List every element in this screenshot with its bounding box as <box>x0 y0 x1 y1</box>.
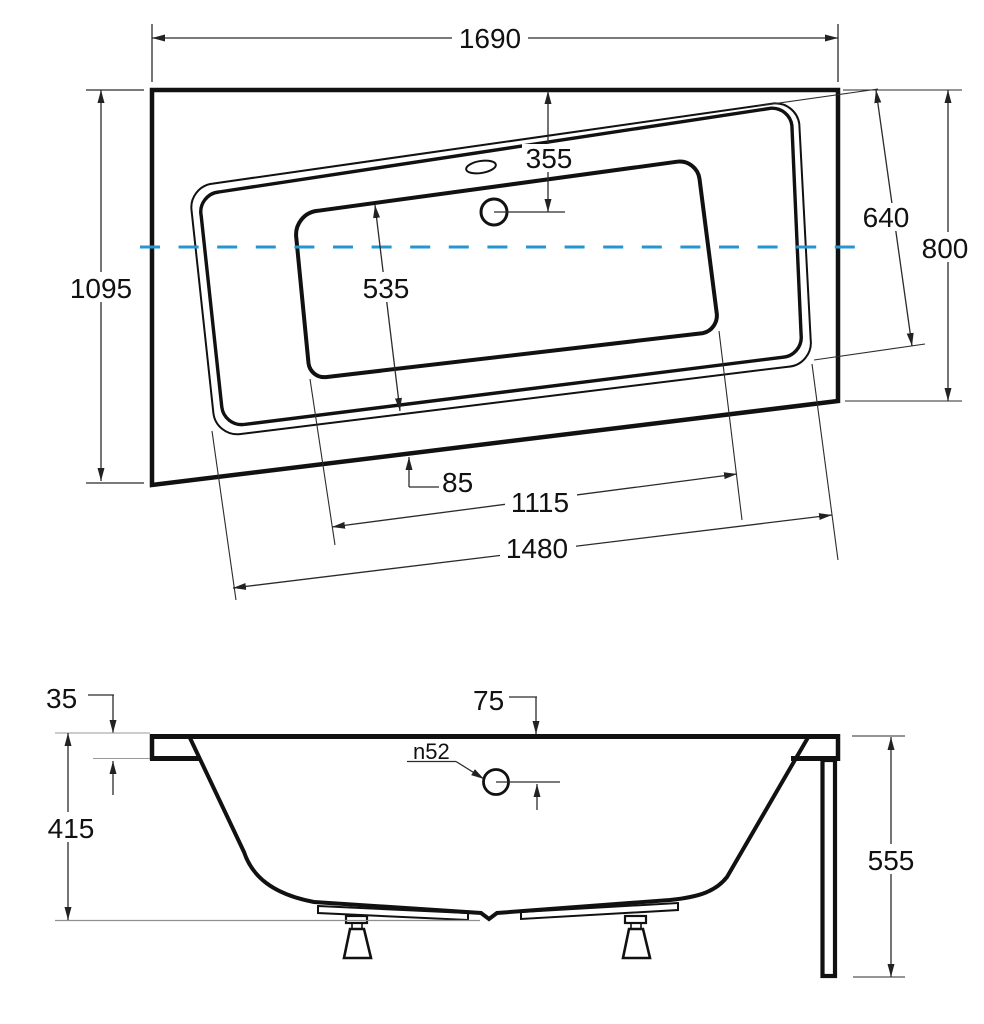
svg-text:1480: 1480 <box>506 533 568 564</box>
svg-text:n52: n52 <box>413 739 450 764</box>
svg-text:1095: 1095 <box>70 273 132 304</box>
svg-text:800: 800 <box>922 233 969 264</box>
svg-text:1690: 1690 <box>459 23 521 54</box>
svg-text:640: 640 <box>863 202 910 233</box>
svg-text:535: 535 <box>363 273 410 304</box>
svg-text:85: 85 <box>442 467 473 498</box>
svg-text:555: 555 <box>868 845 915 876</box>
svg-text:35: 35 <box>46 683 77 714</box>
svg-text:1115: 1115 <box>511 487 569 518</box>
svg-text:355: 355 <box>526 143 573 174</box>
svg-text:75: 75 <box>473 685 504 716</box>
svg-text:415: 415 <box>48 813 95 844</box>
